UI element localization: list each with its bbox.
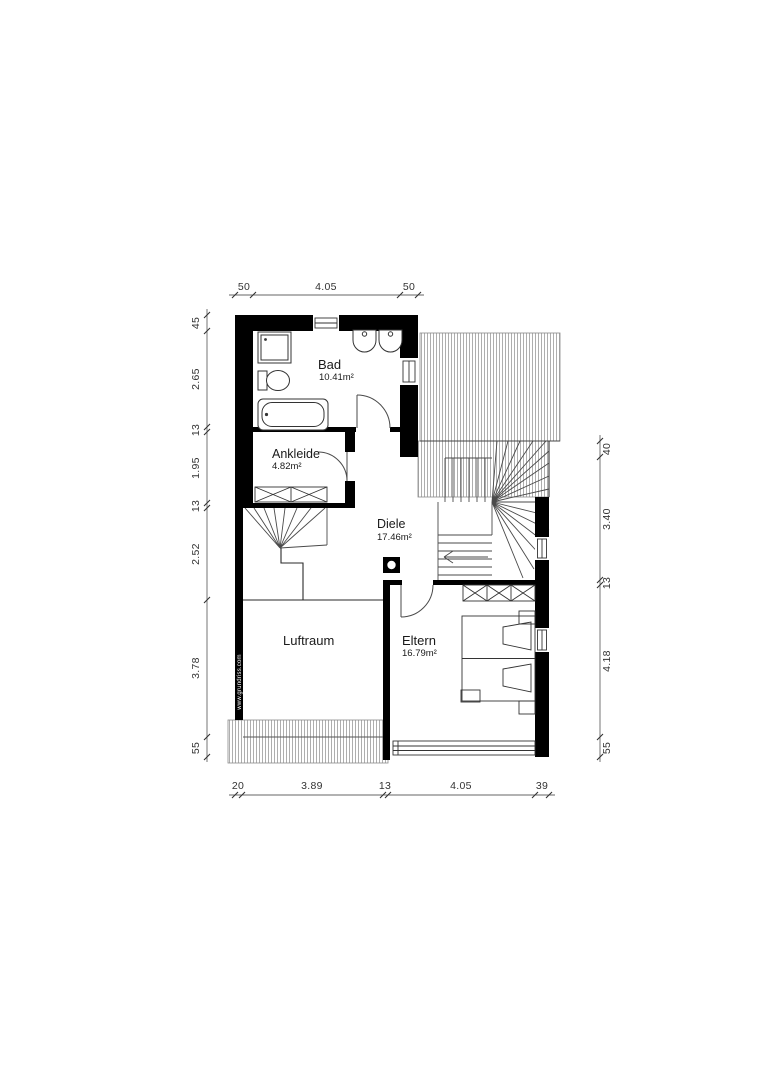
roof-hatch-south bbox=[228, 720, 388, 763]
bathtub bbox=[258, 399, 328, 430]
pillow-bottom bbox=[503, 664, 531, 692]
dim-left-5: 2.52 bbox=[190, 543, 202, 565]
wall-ankleide-east-upper bbox=[345, 432, 355, 452]
dim-bottom-2: 13 bbox=[379, 780, 391, 792]
wall-ankleide-south bbox=[235, 503, 355, 508]
label-ankleide: Ankleide bbox=[272, 447, 320, 461]
roof-hatch-east-upper bbox=[420, 333, 560, 441]
dim-left-7: 55 bbox=[190, 742, 202, 754]
wall-east-seg1 bbox=[535, 497, 549, 537]
wardrobe-ankleide bbox=[255, 487, 327, 502]
dim-right-4: 55 bbox=[601, 742, 613, 754]
wall-bad-east-lower bbox=[400, 385, 418, 457]
chimney bbox=[383, 557, 400, 573]
dim-left-6: 3.78 bbox=[190, 657, 202, 679]
wall-north-right bbox=[339, 315, 418, 331]
sink-right bbox=[379, 330, 402, 352]
dim-top-2: 50 bbox=[403, 281, 415, 293]
stair-direction-arrow bbox=[444, 551, 488, 563]
label-diele-area: 17.46m² bbox=[377, 532, 412, 543]
bed-foot-detail bbox=[461, 690, 480, 702]
sink-left bbox=[353, 330, 376, 352]
dim-top-0: 50 bbox=[238, 281, 250, 293]
wall-eltern-north-left bbox=[383, 580, 402, 585]
floor-plan-page: Bad 10.41m² Ankleide 4.82m² Diele 17.46m… bbox=[0, 0, 764, 1080]
dim-left-3: 1.95 bbox=[190, 457, 202, 479]
dim-chain-top: 50 4.05 50 bbox=[229, 281, 424, 298]
dim-chain-left: 45 2.65 13 1.95 13 2.52 3.78 55 bbox=[190, 309, 210, 762]
label-diele: Diele bbox=[377, 517, 406, 531]
wall-east-seg2 bbox=[535, 560, 549, 628]
dim-bottom-4: 39 bbox=[536, 780, 548, 792]
shower bbox=[258, 332, 291, 363]
label-luftraum: Luftraum bbox=[283, 633, 334, 648]
roof-areas bbox=[228, 333, 560, 763]
wall-west-upper bbox=[235, 331, 253, 508]
window-diele-east bbox=[535, 537, 549, 560]
wall-north-left bbox=[235, 315, 313, 331]
wardrobe-eltern bbox=[463, 585, 535, 601]
wall-bad-east-upper bbox=[400, 331, 418, 358]
door-ankleide bbox=[318, 452, 347, 481]
door-bad bbox=[357, 395, 390, 428]
toilet bbox=[258, 371, 290, 391]
chimney-flue bbox=[387, 561, 395, 569]
window-eltern-east bbox=[535, 628, 549, 652]
dim-chain-right: 40 3.40 13 4.18 55 bbox=[597, 435, 613, 762]
stair-cut-line bbox=[281, 548, 303, 600]
wall-bad-south-stub bbox=[390, 427, 400, 432]
dim-right-3: 4.18 bbox=[601, 650, 613, 672]
pillow-top bbox=[503, 622, 531, 650]
wall-eltern-north-right bbox=[433, 580, 535, 585]
watermark: www.grundriss.com bbox=[237, 654, 243, 710]
label-eltern: Eltern bbox=[402, 633, 436, 648]
floor-plan-drawing: Bad 10.41m² Ankleide 4.82m² Diele 17.46m… bbox=[0, 0, 764, 1080]
dim-left-2: 13 bbox=[190, 424, 202, 436]
dim-right-2: 13 bbox=[601, 577, 613, 589]
nightstand-south bbox=[519, 701, 535, 714]
wall-east-seg3 bbox=[535, 652, 549, 757]
dim-left-0: 45 bbox=[190, 317, 202, 329]
dim-bottom-3: 4.05 bbox=[450, 780, 472, 792]
door-eltern bbox=[401, 585, 433, 617]
label-bad: Bad bbox=[318, 357, 341, 372]
dim-bottom-1: 3.89 bbox=[301, 780, 323, 792]
window-bad-north bbox=[313, 313, 339, 333]
label-ankleide-area: 4.82m² bbox=[272, 461, 302, 472]
label-eltern-area: 16.79m² bbox=[402, 648, 437, 659]
nightstand-north bbox=[519, 611, 535, 624]
wall-luftraum-eltern bbox=[383, 585, 390, 760]
dim-bottom-0: 20 bbox=[232, 780, 244, 792]
dim-left-1: 2.65 bbox=[190, 368, 202, 390]
window-bad-east bbox=[400, 358, 418, 385]
label-bad-area: 10.41m² bbox=[319, 372, 354, 383]
staircase-left bbox=[245, 508, 327, 600]
window-eltern-south bbox=[393, 741, 535, 755]
dim-right-1: 3.40 bbox=[601, 508, 613, 530]
double-bed bbox=[461, 616, 535, 702]
dim-left-4: 13 bbox=[190, 500, 202, 512]
dim-right-0: 40 bbox=[601, 443, 613, 455]
dim-chain-bottom: 20 3.89 13 4.05 39 bbox=[229, 780, 555, 798]
dim-top-1: 4.05 bbox=[315, 281, 337, 293]
